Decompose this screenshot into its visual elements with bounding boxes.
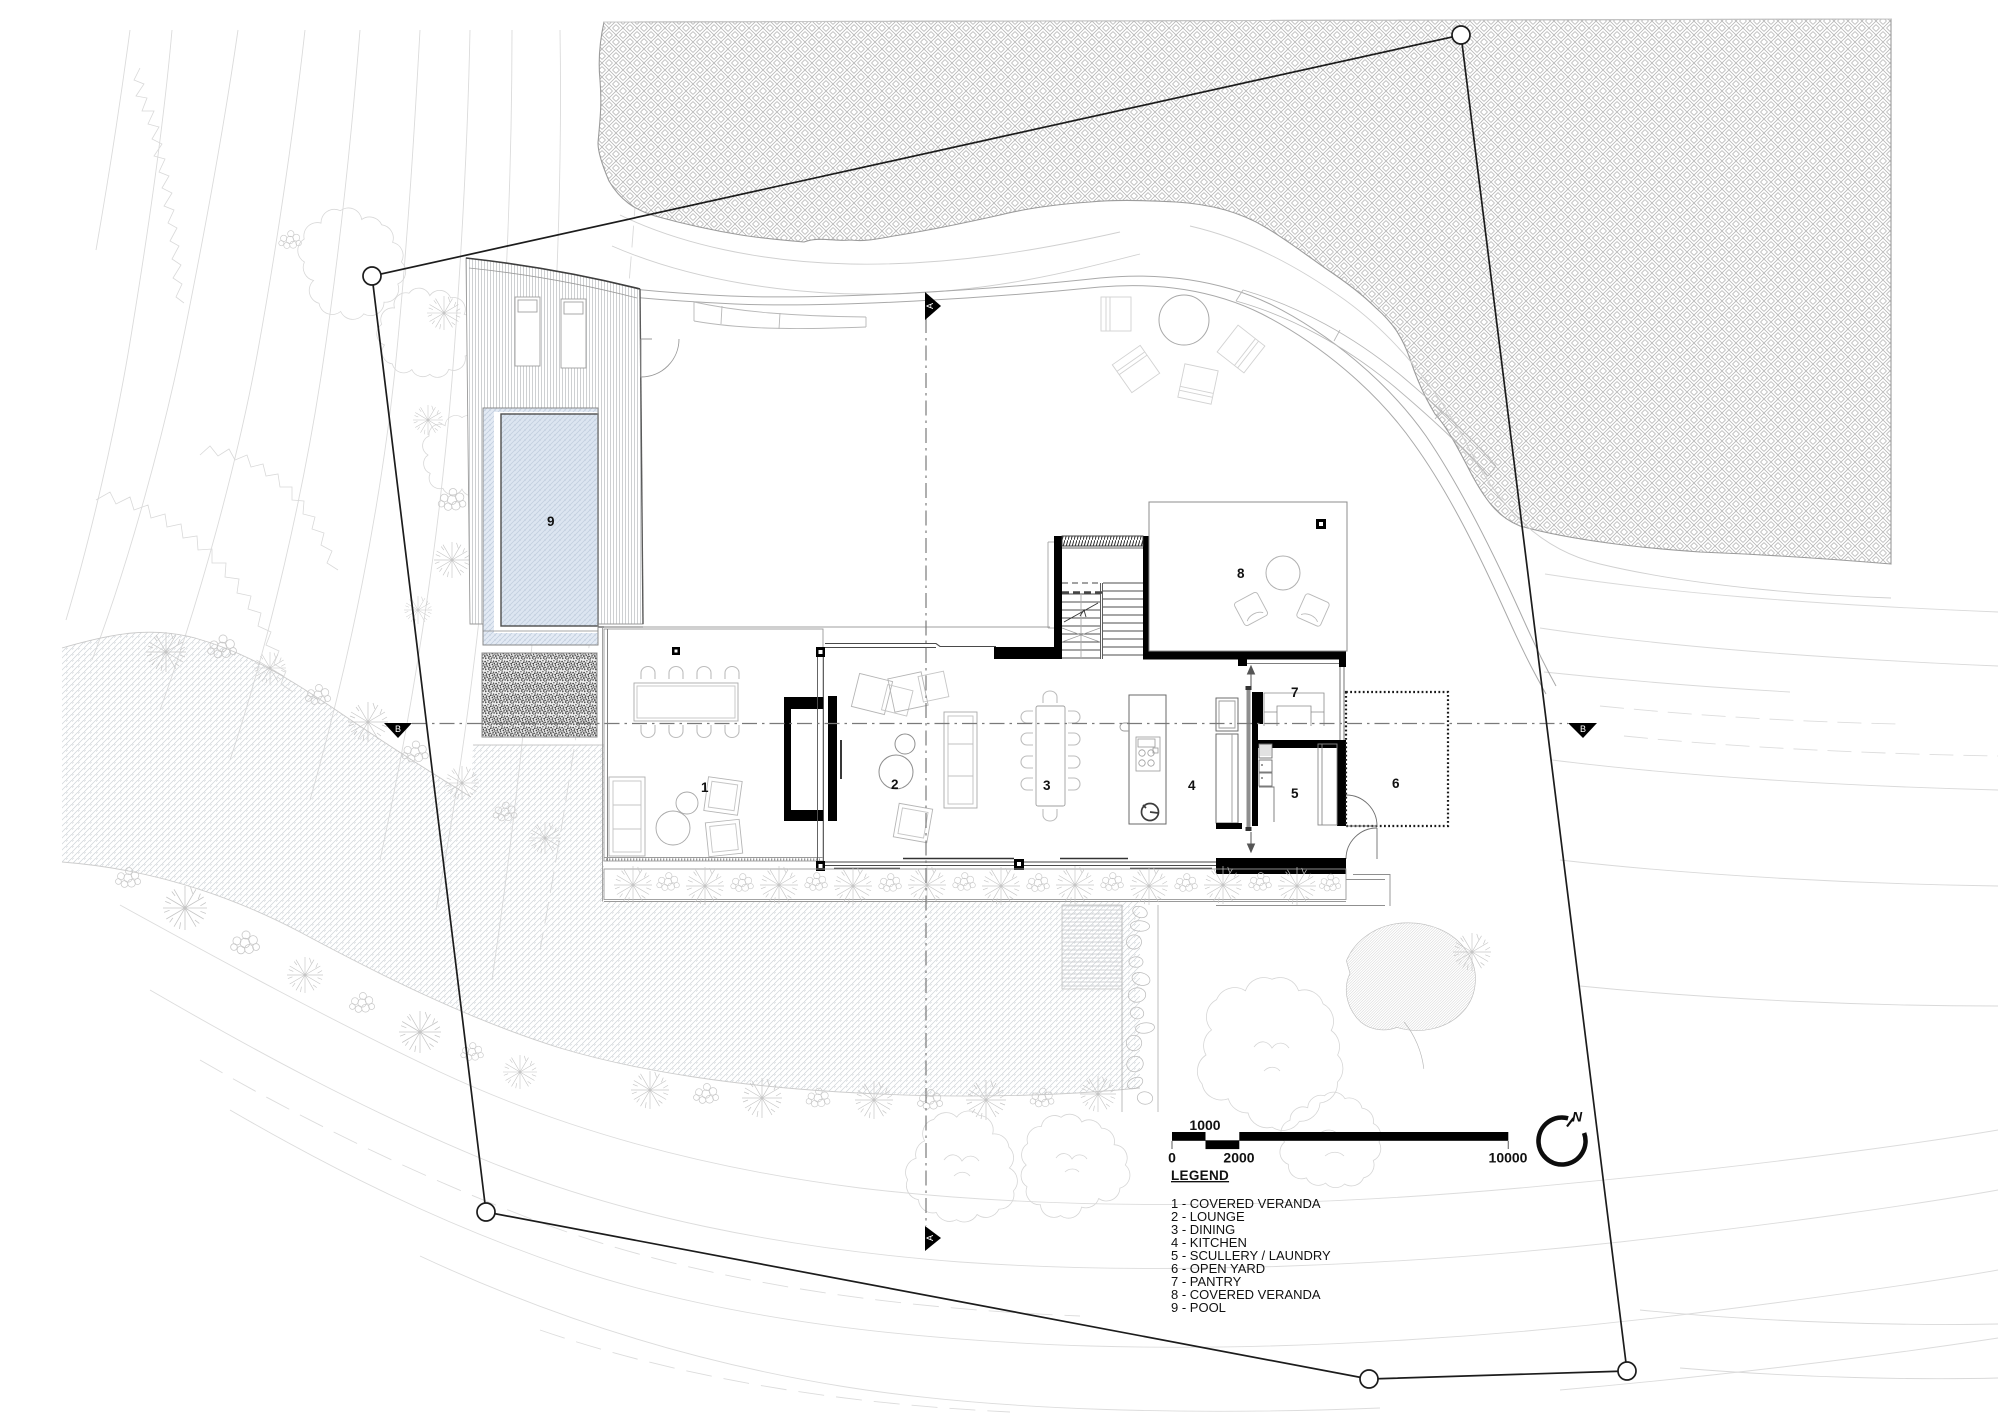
svg-text:2000: 2000 (1223, 1150, 1254, 1166)
svg-text:2: 2 (891, 777, 899, 792)
svg-text:N: N (1572, 1109, 1583, 1125)
svg-text:B: B (1580, 724, 1586, 734)
svg-text:7: 7 (1291, 685, 1299, 700)
svg-text:0: 0 (1168, 1150, 1176, 1166)
svg-text:A: A (925, 1235, 935, 1241)
svg-text:A: A (925, 303, 935, 309)
svg-text:1: 1 (701, 780, 709, 795)
svg-text:8: 8 (1237, 566, 1245, 581)
svg-text:9 - POOL: 9 - POOL (1171, 1300, 1226, 1315)
svg-text:9: 9 (547, 514, 555, 529)
svg-text:5: 5 (1291, 786, 1299, 801)
svg-text:4: 4 (1188, 778, 1196, 793)
svg-text:B: B (395, 724, 401, 734)
svg-text:1000: 1000 (1189, 1117, 1220, 1133)
svg-text:10000: 10000 (1489, 1150, 1528, 1166)
svg-text:6: 6 (1392, 776, 1400, 791)
svg-text:3: 3 (1043, 778, 1051, 793)
svg-text:LEGEND: LEGEND (1171, 1168, 1229, 1183)
